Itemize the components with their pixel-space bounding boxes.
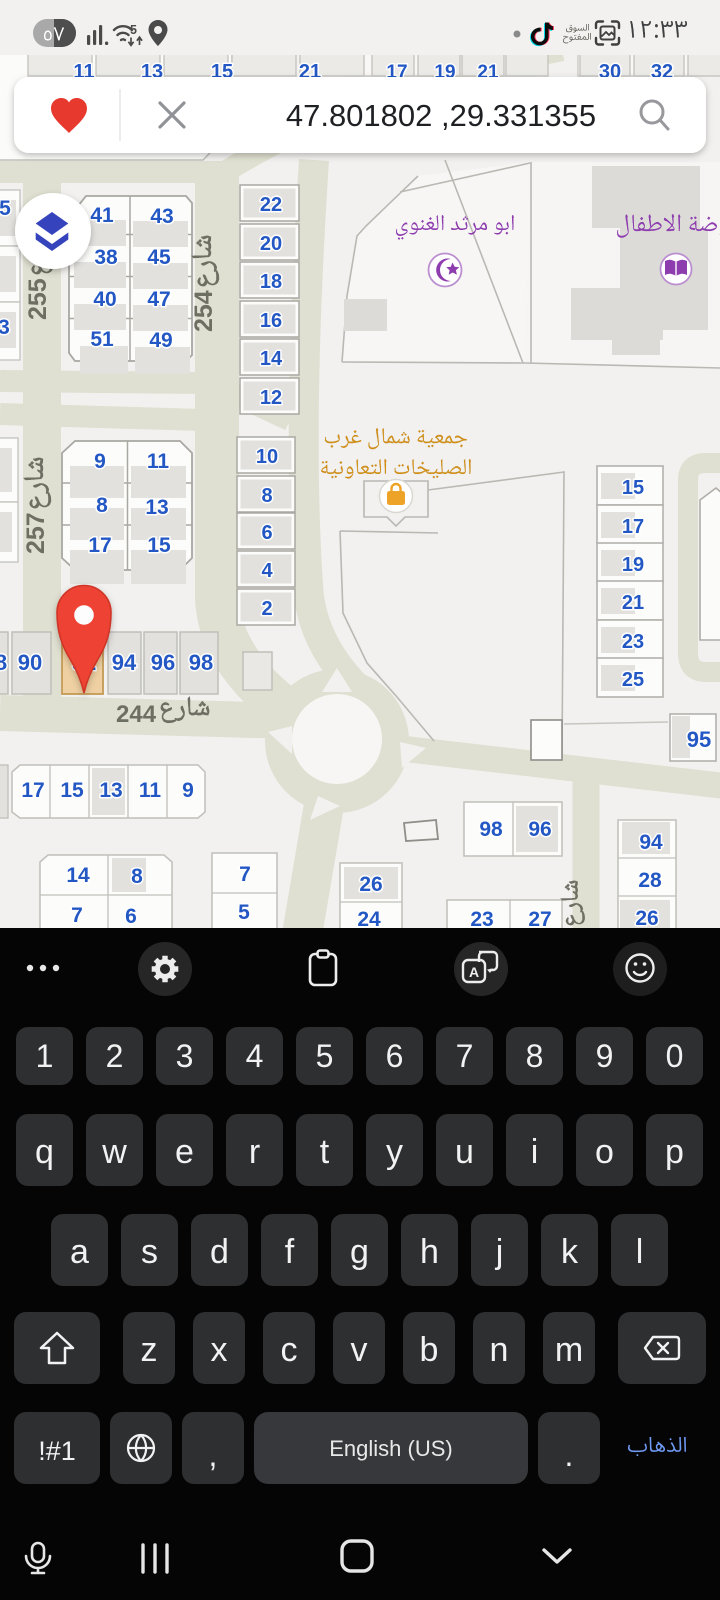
svg-text:8: 8 xyxy=(0,650,7,675)
svg-text:n: n xyxy=(490,1331,509,1369)
svg-text:11: 11 xyxy=(139,779,162,802)
svg-text:15: 15 xyxy=(60,779,84,802)
svg-text:j: j xyxy=(495,1233,504,1271)
svg-text:15: 15 xyxy=(147,534,171,557)
svg-text:s: s xyxy=(141,1233,158,1271)
svg-text:17: 17 xyxy=(622,516,644,538)
svg-text:3: 3 xyxy=(176,1038,194,1074)
svg-text:20: 20 xyxy=(260,233,282,255)
svg-text:A: A xyxy=(469,964,479,980)
svg-text:49: 49 xyxy=(149,329,172,352)
svg-text:4: 4 xyxy=(261,560,273,582)
svg-text:26: 26 xyxy=(635,907,658,928)
svg-text:257: 257 xyxy=(22,512,50,554)
svg-text:11: 11 xyxy=(147,450,170,473)
svg-text:38: 38 xyxy=(94,246,118,269)
svg-text:6: 6 xyxy=(125,905,137,928)
svg-text:22: 22 xyxy=(260,194,282,216)
svg-text:2: 2 xyxy=(261,598,272,620)
svg-text:5: 5 xyxy=(130,23,137,37)
svg-text:90: 90 xyxy=(18,650,42,675)
svg-text:w: w xyxy=(101,1133,127,1171)
svg-text:8: 8 xyxy=(96,494,108,517)
svg-text:254: 254 xyxy=(190,290,218,332)
svg-text:8: 8 xyxy=(261,485,272,507)
svg-text:94: 94 xyxy=(112,650,137,675)
svg-text:f: f xyxy=(285,1233,295,1271)
svg-text:q: q xyxy=(35,1133,54,1171)
svg-text:17: 17 xyxy=(88,534,111,557)
svg-text:23: 23 xyxy=(622,631,644,653)
svg-text:r: r xyxy=(249,1133,260,1171)
svg-text:2: 2 xyxy=(106,1038,124,1074)
svg-text:a: a xyxy=(70,1233,89,1271)
svg-text:96: 96 xyxy=(528,818,551,841)
svg-text:m: m xyxy=(555,1331,583,1369)
svg-text:255: 255 xyxy=(24,278,52,320)
svg-text:7: 7 xyxy=(71,904,83,927)
svg-text:p: p xyxy=(665,1133,684,1171)
svg-text:98: 98 xyxy=(189,650,213,675)
svg-text:e: e xyxy=(175,1133,194,1171)
svg-text:27: 27 xyxy=(528,908,551,928)
svg-text:b: b xyxy=(420,1331,439,1369)
svg-text:45: 45 xyxy=(147,246,171,269)
svg-text:5: 5 xyxy=(316,1038,334,1074)
svg-text:8: 8 xyxy=(131,865,143,888)
svg-text:4: 4 xyxy=(246,1038,264,1074)
svg-text:x: x xyxy=(211,1331,228,1369)
svg-text:19: 19 xyxy=(622,554,644,576)
svg-text:3: 3 xyxy=(0,316,10,339)
svg-text:14: 14 xyxy=(66,864,90,887)
svg-text:47.801802 ,29.331355: 47.801802 ,29.331355 xyxy=(286,98,596,133)
svg-text:8: 8 xyxy=(526,1038,544,1074)
svg-text:u: u xyxy=(455,1133,474,1171)
svg-text:c: c xyxy=(281,1331,298,1369)
svg-text:43: 43 xyxy=(150,205,173,228)
svg-text:g: g xyxy=(350,1233,369,1271)
svg-text:40: 40 xyxy=(93,288,116,311)
svg-text:17: 17 xyxy=(21,779,44,802)
svg-text:41: 41 xyxy=(90,204,114,227)
svg-text:h: h xyxy=(420,1233,439,1271)
svg-text:51: 51 xyxy=(90,328,114,351)
svg-text:16: 16 xyxy=(260,310,282,332)
svg-text:9: 9 xyxy=(182,779,194,802)
svg-text:15: 15 xyxy=(622,477,644,499)
svg-text:,: , xyxy=(209,1437,218,1473)
svg-text:23: 23 xyxy=(470,908,493,928)
svg-text:25: 25 xyxy=(622,669,644,691)
svg-text:v: v xyxy=(351,1331,368,1369)
svg-text:95: 95 xyxy=(687,727,711,752)
svg-text:d: d xyxy=(210,1233,229,1271)
svg-text:18: 18 xyxy=(260,271,282,293)
svg-text:13: 13 xyxy=(99,779,122,802)
svg-text:!#1: !#1 xyxy=(38,1436,76,1466)
svg-text:5: 5 xyxy=(238,901,250,924)
svg-text:6: 6 xyxy=(386,1038,404,1074)
svg-text:24: 24 xyxy=(357,908,381,928)
svg-text:English (US): English (US) xyxy=(329,1436,452,1461)
svg-text:o: o xyxy=(595,1133,614,1171)
svg-text:7: 7 xyxy=(456,1038,474,1074)
svg-text:6: 6 xyxy=(261,522,272,544)
svg-text:12: 12 xyxy=(260,387,282,409)
svg-text:244: 244 xyxy=(116,701,157,728)
svg-text:28: 28 xyxy=(638,869,662,892)
svg-text:z: z xyxy=(141,1331,158,1369)
svg-text:t: t xyxy=(320,1133,330,1171)
svg-text:98: 98 xyxy=(479,818,503,841)
svg-text:14: 14 xyxy=(260,348,283,370)
svg-text:26: 26 xyxy=(359,873,382,896)
svg-text:47: 47 xyxy=(147,288,170,311)
svg-text:1: 1 xyxy=(36,1038,54,1074)
svg-text:9: 9 xyxy=(94,450,106,473)
svg-text:7: 7 xyxy=(239,863,251,886)
svg-text:9: 9 xyxy=(596,1038,614,1074)
svg-text:k: k xyxy=(561,1233,579,1271)
svg-text:94: 94 xyxy=(639,831,663,854)
svg-text:l: l xyxy=(636,1233,644,1271)
svg-text:10: 10 xyxy=(256,446,278,468)
svg-text:i: i xyxy=(531,1133,539,1171)
svg-text:5: 5 xyxy=(0,197,11,220)
svg-text:21: 21 xyxy=(622,592,644,614)
svg-text:96: 96 xyxy=(151,650,175,675)
svg-text:0: 0 xyxy=(666,1038,684,1074)
svg-text:y: y xyxy=(386,1133,403,1171)
svg-text:13: 13 xyxy=(145,496,168,519)
svg-text:.: . xyxy=(565,1437,574,1473)
